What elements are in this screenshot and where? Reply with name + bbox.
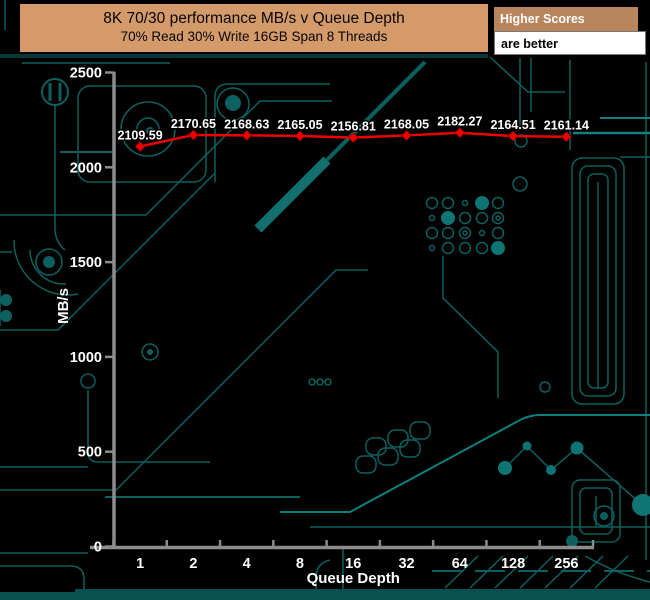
x-tick-label: 64 — [452, 556, 468, 572]
y-tick-label: 2000 — [70, 160, 102, 176]
chart-subtitle: 70% Read 30% Write 16GB Span 8 Threads — [20, 28, 488, 45]
y-tick-label: 1500 — [70, 255, 102, 271]
x-tick-label: 128 — [501, 556, 525, 572]
data-point-label: 2165.05 — [277, 118, 322, 132]
y-axis-title: MB/s — [55, 288, 72, 324]
data-point-label: 2170.65 — [171, 117, 216, 131]
x-tick-label: 1 — [136, 556, 144, 572]
y-tick-label: 0 — [94, 540, 102, 556]
y-tick-label: 2500 — [70, 66, 102, 82]
chart-title-box: 8K 70/30 performance MB/s v Queue Depth … — [20, 4, 488, 52]
higher-scores-badge: Higher Scores are better — [494, 7, 646, 55]
data-point-label: 2156.81 — [331, 120, 376, 134]
data-point-marker — [242, 131, 252, 141]
chart-title: 8K 70/30 performance MB/s v Queue Depth — [20, 10, 488, 28]
y-tick-label: 1000 — [70, 350, 102, 366]
data-point-label: 2168.63 — [224, 117, 269, 131]
x-tick-label: 256 — [554, 556, 578, 572]
data-point-marker — [295, 131, 305, 141]
chart-plot-area: 050010001500200025001248163264128256MB/s… — [0, 0, 650, 600]
chart-page: 050010001500200025001248163264128256MB/s… — [0, 0, 650, 600]
y-tick-label: 500 — [78, 445, 102, 461]
badge-subtext: are better — [494, 31, 646, 55]
data-point-marker — [508, 131, 518, 141]
data-point-label: 2182.27 — [437, 115, 482, 129]
data-point-marker — [189, 130, 199, 140]
data-point-label: 2164.51 — [490, 118, 535, 132]
badge-heading: Higher Scores — [494, 7, 638, 31]
data-point-label: 2109.59 — [118, 129, 163, 143]
data-point-marker — [402, 131, 412, 141]
x-tick-label: 8 — [296, 556, 304, 572]
data-point-label: 2161.14 — [544, 119, 589, 133]
data-point-label: 2168.05 — [384, 117, 429, 131]
x-tick-label: 2 — [189, 556, 197, 572]
data-point-marker — [135, 142, 145, 152]
data-point-marker — [348, 133, 358, 143]
data-point-marker — [455, 128, 465, 138]
x-tick-label: 4 — [243, 556, 251, 572]
x-axis-title: Queue Depth — [307, 570, 400, 587]
x-tick-label: 32 — [398, 556, 414, 572]
data-point-marker — [562, 132, 572, 142]
